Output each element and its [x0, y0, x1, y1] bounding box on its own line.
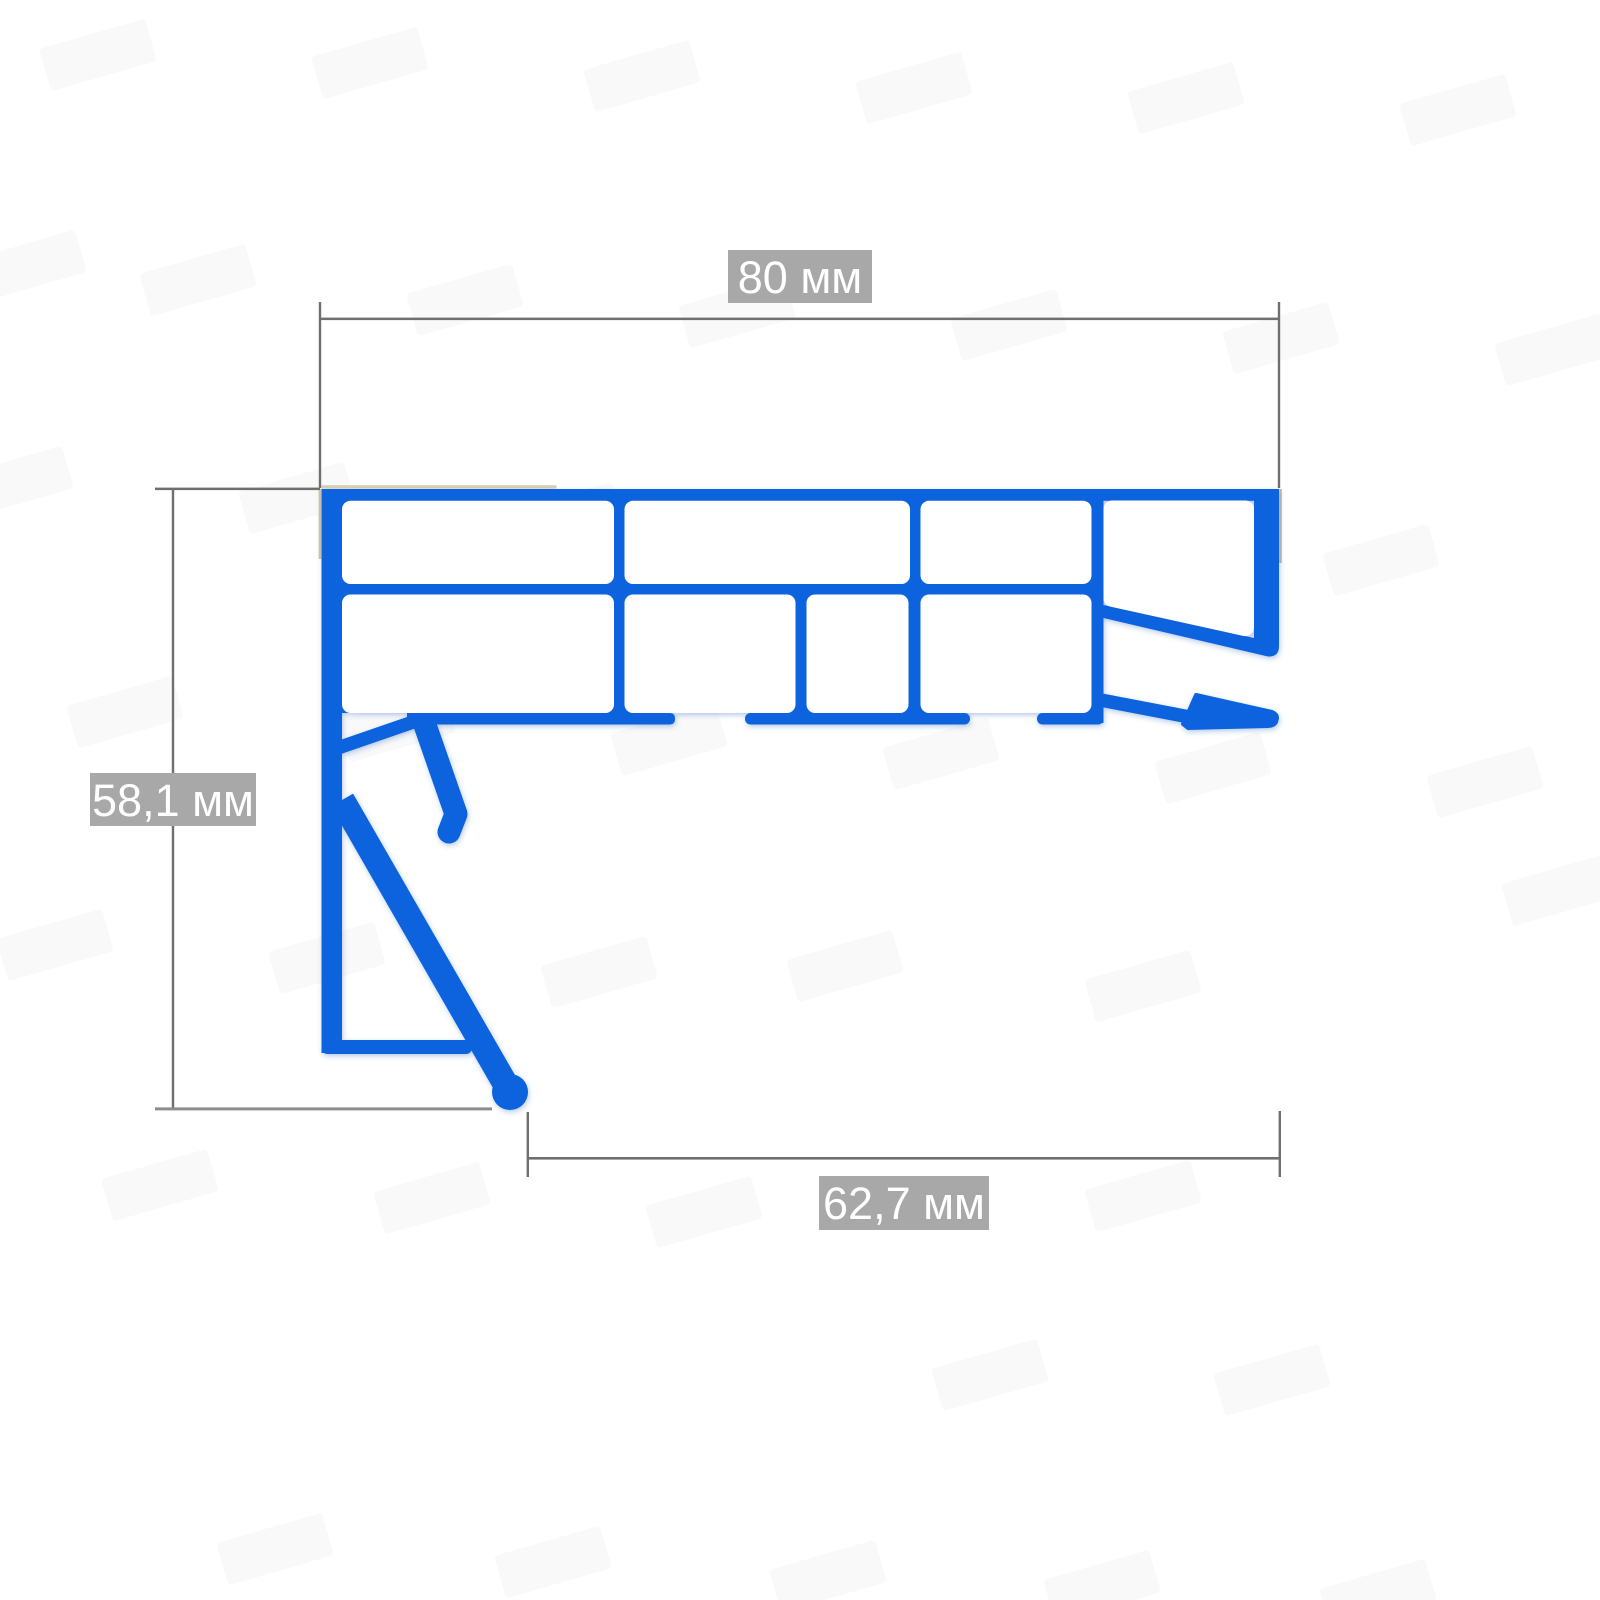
- svg-text:58,1 мм: 58,1 мм: [92, 775, 254, 826]
- svg-text:80 мм: 80 мм: [738, 252, 862, 303]
- svg-text:62,7 мм: 62,7 мм: [823, 1178, 985, 1229]
